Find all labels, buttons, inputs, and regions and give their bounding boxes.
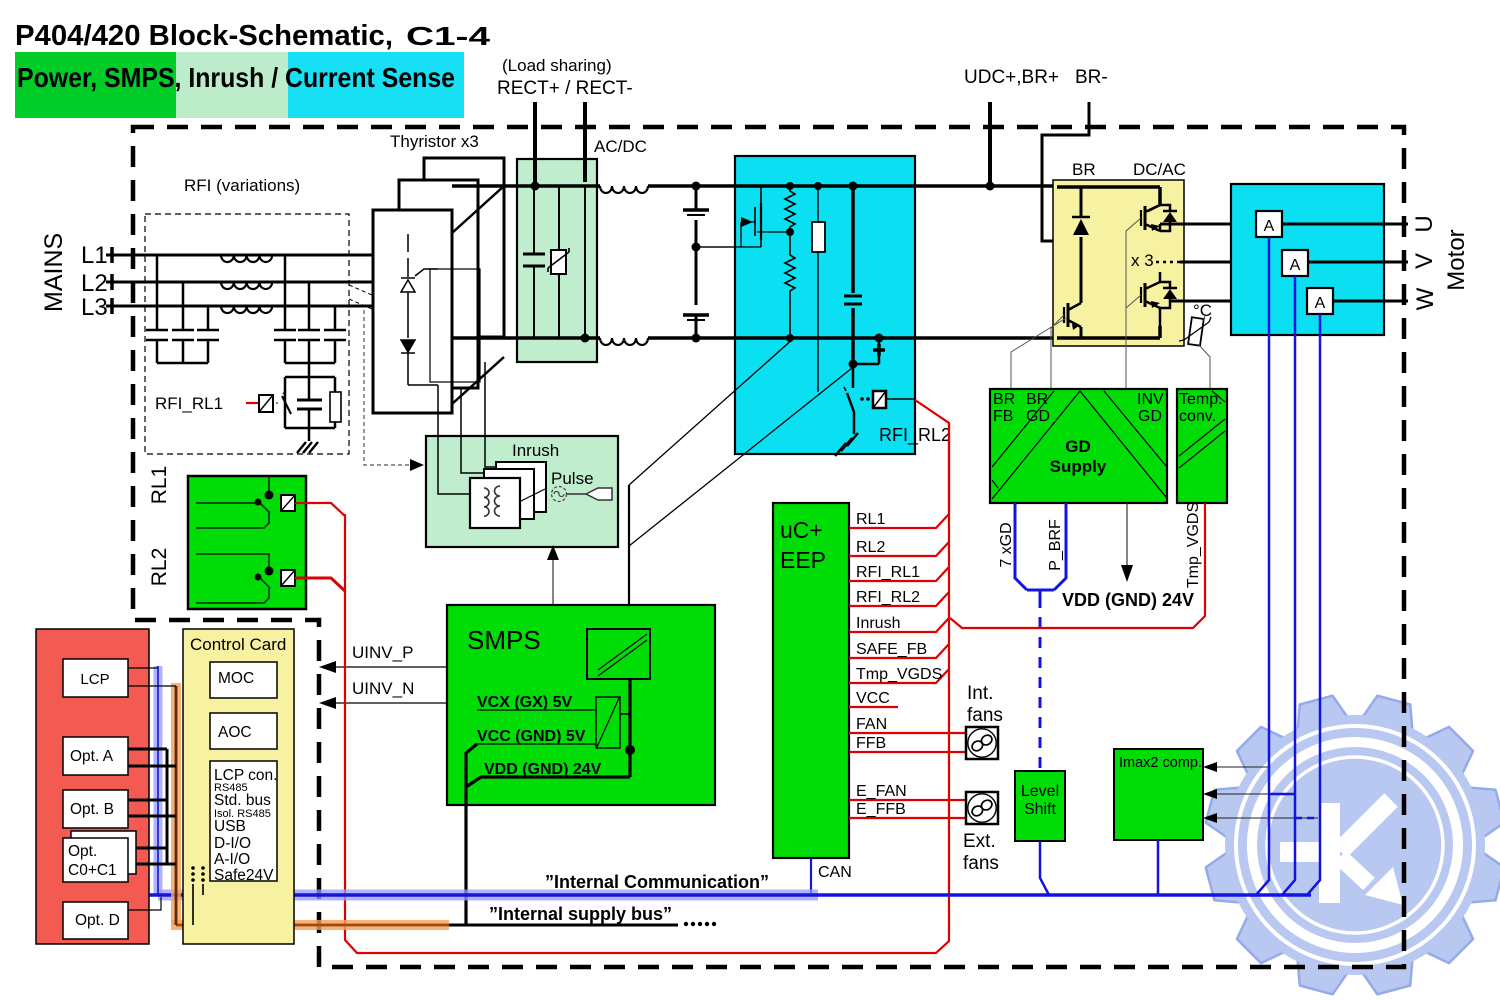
svg-text:Opt. B: Opt. B (70, 801, 114, 818)
svg-text:LCP: LCP (80, 671, 109, 688)
svg-text:RL2: RL2 (148, 548, 171, 587)
svg-text:Safe24V: Safe24V (214, 867, 274, 884)
svg-text:CAN: CAN (818, 864, 852, 881)
svg-text:Opt. D: Opt. D (75, 912, 120, 929)
svg-text:C0+C1: C0+C1 (68, 862, 117, 879)
svg-text:RECT+ / RECT-: RECT+ / RECT- (497, 78, 633, 99)
svg-text:V: V (1411, 253, 1438, 269)
svg-text:Tmp_VGDS: Tmp_VGDS (1185, 502, 1202, 588)
svg-text:U: U (1411, 215, 1438, 232)
svg-text:”Internal supply bus”: ”Internal supply bus” (489, 904, 672, 924)
svg-text:AOC: AOC (218, 724, 252, 741)
svg-text:RL1: RL1 (148, 466, 171, 505)
svg-text:RFI_RL1: RFI_RL1 (155, 394, 223, 413)
svg-text:BR-: BR- (1075, 67, 1108, 88)
svg-text:Power, SMPS, Inrush / Current: Power, SMPS, Inrush / Current Sense (17, 62, 455, 93)
svg-text:P404/420 Block-Schematic,: P404/420 Block-Schematic, (15, 20, 393, 52)
svg-text:Shift: Shift (1024, 801, 1057, 818)
svg-text:Opt. A: Opt. A (70, 748, 114, 765)
svg-text:UDC+,BR+: UDC+,BR+ (964, 67, 1059, 88)
svg-text:FFB: FFB (856, 735, 886, 752)
svg-text:Temp.: Temp. (1179, 391, 1223, 408)
svg-text:Int.: Int. (967, 683, 993, 704)
svg-text:uC+: uC+ (780, 517, 823, 543)
svg-text:7 xGD: 7 xGD (998, 522, 1015, 567)
svg-text:RFI_RL1: RFI_RL1 (856, 564, 920, 581)
svg-text:Thyristor x3: Thyristor x3 (390, 132, 479, 151)
svg-text:GD: GD (1026, 408, 1050, 425)
svg-text:Control Card: Control Card (190, 635, 286, 654)
svg-text:BR: BR (1072, 160, 1096, 179)
svg-text:E_FFB: E_FFB (856, 801, 906, 818)
svg-text:Motor: Motor (1443, 229, 1470, 290)
svg-text:(Load sharing): (Load sharing) (502, 56, 612, 75)
svg-text:L2: L2 (81, 270, 108, 297)
svg-text:Supply: Supply (1050, 457, 1107, 476)
svg-text:VCC: VCC (856, 690, 890, 707)
svg-text:AC/DC: AC/DC (594, 137, 647, 156)
svg-text:L1: L1 (81, 242, 108, 269)
svg-text:A: A (1264, 218, 1275, 235)
svg-text:Inrush: Inrush (856, 615, 900, 632)
svg-text:Level: Level (1021, 783, 1059, 800)
svg-text:EEP: EEP (780, 547, 826, 573)
svg-text:Pulse: Pulse (551, 469, 594, 488)
svg-text:UINV_P: UINV_P (352, 643, 413, 662)
svg-text:FB: FB (993, 408, 1013, 425)
svg-text:A: A (1290, 257, 1301, 274)
svg-text:P_BRF: P_BRF (1047, 519, 1064, 571)
svg-text:Tmp_VGDS: Tmp_VGDS (856, 666, 942, 683)
svg-text:E_FAN: E_FAN (856, 783, 907, 800)
svg-text:Opt.: Opt. (68, 843, 97, 860)
svg-text:L3: L3 (81, 294, 108, 321)
svg-text:DC/AC: DC/AC (1133, 160, 1186, 179)
svg-text:W: W (1412, 287, 1439, 310)
svg-text:VCX (GX) 5V: VCX (GX) 5V (477, 694, 572, 711)
svg-text:SAFE_FB: SAFE_FB (856, 641, 927, 658)
svg-text:VCC (GND) 5V: VCC (GND) 5V (477, 728, 586, 745)
svg-text:FAN: FAN (856, 716, 887, 733)
svg-text:SMPS: SMPS (467, 625, 541, 655)
svg-text:INV: INV (1137, 391, 1164, 408)
svg-text:GD: GD (1065, 437, 1091, 456)
svg-text:Inrush: Inrush (512, 441, 559, 460)
svg-text:D-I/O: D-I/O (214, 835, 251, 852)
svg-text:C1-4: C1-4 (406, 21, 491, 51)
svg-text:A: A (1315, 295, 1326, 312)
svg-text:Std. bus: Std. bus (214, 792, 271, 809)
svg-text:fans: fans (967, 705, 1003, 726)
svg-text:RFI_RL2: RFI_RL2 (856, 589, 920, 606)
svg-text:MAINS: MAINS (40, 233, 68, 312)
svg-text:USB: USB (214, 818, 246, 835)
svg-text:RL2: RL2 (856, 539, 885, 556)
svg-text:Imax2 comp.: Imax2 comp. (1119, 755, 1202, 771)
svg-text:BR: BR (1026, 391, 1048, 408)
svg-text:GD: GD (1138, 408, 1162, 425)
svg-text:MOC: MOC (218, 670, 254, 687)
svg-text:RL1: RL1 (856, 511, 885, 528)
svg-text:BR: BR (993, 391, 1015, 408)
svg-text:”Internal Communication”: ”Internal Communication” (545, 872, 769, 892)
svg-text:VDD (GND) 24V: VDD (GND) 24V (1062, 590, 1194, 610)
svg-text:RFI (variations): RFI (variations) (184, 176, 300, 195)
svg-text:UINV_N: UINV_N (352, 679, 414, 698)
svg-text:fans: fans (963, 853, 999, 874)
svg-text:RFI_RL2: RFI_RL2 (879, 425, 951, 446)
svg-text:conv.: conv. (1179, 408, 1216, 425)
svg-text:Ext.: Ext. (963, 831, 996, 852)
svg-text:x 3: x 3 (1131, 251, 1154, 270)
svg-text:A-I/O: A-I/O (214, 851, 250, 868)
